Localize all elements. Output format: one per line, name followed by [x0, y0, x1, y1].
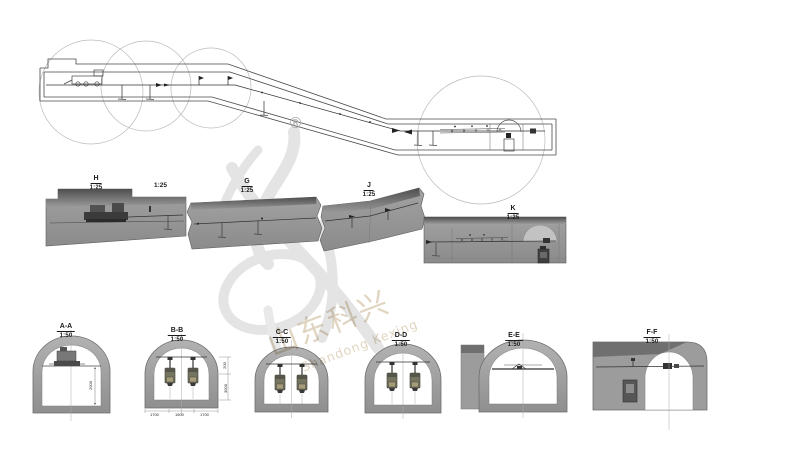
section-letter: J	[364, 182, 374, 191]
section-scale: 1:25	[241, 188, 254, 194]
section-letter: D-D	[392, 332, 410, 341]
dim-bb-lower: 3000	[223, 384, 228, 393]
drawing-canvas: ® 山东科兴 Shandong Kexing H 1:25 1:25 G 1:2…	[0, 0, 800, 450]
cross-section-ff	[593, 334, 707, 430]
section-letter: B-B	[168, 327, 186, 336]
label-cross-bb: B-B 1:50	[168, 318, 186, 343]
section-letter: G	[241, 178, 252, 187]
label-extra-scale: 1:25	[154, 182, 167, 189]
label-cross-ff: F-F 1:50	[644, 320, 661, 345]
section-scale: 1:25	[507, 215, 520, 221]
label-section-h: H 1:25	[90, 166, 103, 191]
label-section-g: G 1:25	[241, 169, 254, 194]
cross-section-aa	[33, 330, 110, 421]
dim-bb-bottom-2: 1500	[175, 412, 184, 417]
section-scale: 1:25	[363, 192, 376, 198]
section-scale: 1:50	[644, 339, 661, 345]
ff-cabinet	[623, 380, 637, 402]
section-view-k	[424, 217, 566, 263]
section-letter: E-E	[505, 332, 523, 341]
label-section-j: J 1:25	[363, 173, 376, 198]
dim-aa-height: 2000	[88, 381, 93, 390]
dim-bb-bottom-3: 1700	[200, 412, 209, 417]
section-letter: C-C	[273, 329, 291, 338]
section-letter: H	[90, 175, 101, 184]
section-view-g	[187, 197, 322, 249]
plan-conveyor	[440, 125, 536, 133]
label-section-k: K 1:25	[507, 196, 520, 221]
cross-section-bb	[145, 334, 231, 414]
section-scale: 1:50	[505, 342, 523, 348]
section-scale: 1:50	[168, 337, 186, 343]
section-letter: F-F	[644, 329, 661, 338]
registered-trademark-icon: ®	[288, 114, 303, 132]
dim-bb-upper: 200	[222, 362, 227, 369]
label-cross-dd: D-D 1:50	[392, 323, 410, 348]
cad-drawing	[0, 0, 800, 450]
section-scale: 1:50	[57, 333, 75, 339]
label-cross-aa: A-A 1:50	[57, 314, 75, 339]
section-letter: K	[507, 205, 518, 214]
plan-cabinet	[504, 133, 514, 151]
dim-bb-bottom-1: 1700	[150, 412, 159, 417]
plan-machine	[64, 70, 103, 86]
section-scale: 1:50	[273, 339, 291, 345]
section-letter: A-A	[57, 323, 75, 332]
section-scale: 1:50	[392, 342, 410, 348]
label-cross-cc: C-C 1:50	[273, 320, 291, 345]
label-cross-ee: E-E 1:50	[505, 323, 523, 348]
section-view-h	[46, 189, 186, 246]
section-scale: 1:25	[90, 185, 103, 191]
plan-hangers	[118, 85, 437, 146]
